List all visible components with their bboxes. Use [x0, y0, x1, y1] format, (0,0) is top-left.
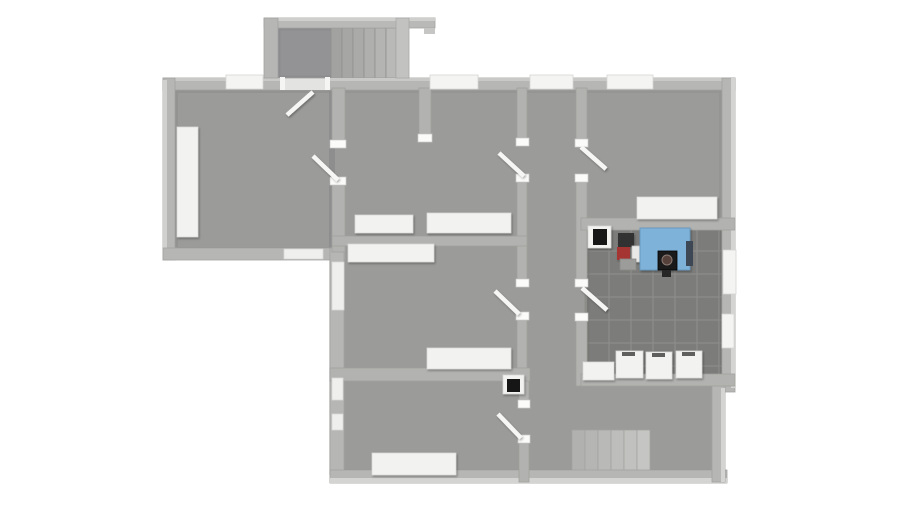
- sideboard: [372, 453, 456, 475]
- lower-divider-wall: [330, 368, 530, 381]
- sideboard: [637, 197, 717, 219]
- washing-machine-panel: [682, 352, 695, 356]
- sideboard: [427, 348, 511, 369]
- bottom-stair-tread: [637, 430, 650, 472]
- door-jamb-cap: [516, 138, 529, 146]
- corridor-east-wall-2: [576, 182, 587, 279]
- door-jamb-cap: [575, 313, 588, 321]
- west-wall-highlight: [163, 80, 167, 258]
- stairwell-right-wall: [396, 18, 409, 78]
- washing-machine-panel: [652, 353, 665, 357]
- window-north: [530, 75, 573, 89]
- east-wall-lower-highlight: [721, 388, 725, 482]
- door-jamb-cap: [575, 139, 588, 147]
- radiator: [332, 414, 343, 430]
- door-jamb-cap: [418, 134, 432, 142]
- kitchen-appliance-red: [617, 247, 630, 260]
- door-jamb-cap: [518, 400, 530, 408]
- door-jamb-cap: [330, 140, 346, 148]
- kitchen-appliance-gray: [620, 259, 636, 270]
- stairwell-left-wall: [264, 18, 278, 78]
- radiator: [284, 249, 323, 259]
- corridor-east-wall-1: [576, 88, 587, 139]
- leftroom-east-wall-upper: [332, 88, 345, 140]
- island-machine-knob: [662, 255, 672, 265]
- bottom-stair-tread: [624, 430, 637, 472]
- top-stair-tread: [364, 28, 375, 78]
- sideboard: [427, 213, 511, 233]
- island-chair-dark: [686, 241, 693, 266]
- bottom-stair-tread: [585, 430, 598, 472]
- door-jamb-cap: [516, 279, 529, 287]
- stairwell-top-wall-end: [424, 28, 435, 34]
- window-east: [722, 314, 734, 348]
- kitchen-appliance-dark: [618, 233, 634, 247]
- floor-left-room: [175, 90, 332, 250]
- top-stair-tread: [353, 28, 364, 78]
- wardrobe: [177, 127, 198, 237]
- radiator: [332, 378, 343, 400]
- entry-door-threshold: [284, 79, 326, 90]
- dryer: [583, 362, 614, 380]
- washing-machine-panel: [622, 352, 635, 356]
- top-stair-tread: [386, 28, 396, 78]
- entry-door-jamb: [280, 77, 285, 90]
- upper-middle-stub-wall: [419, 88, 431, 134]
- window-north: [226, 75, 263, 89]
- corridor-west-wall-1: [517, 88, 527, 138]
- bottom-stair-tread: [572, 430, 585, 472]
- sideboard: [348, 244, 434, 262]
- wall-cabinet-door: [593, 229, 607, 245]
- door-jamb-cap: [575, 174, 588, 182]
- door-jamb-cap: [575, 279, 588, 287]
- bottom-stair-tread: [611, 430, 624, 472]
- corridor-west-wall-2: [517, 182, 527, 279]
- sideboard: [355, 215, 413, 233]
- island-machine-tab: [662, 270, 671, 277]
- bottom-stair-tread: [598, 430, 611, 472]
- hall-west-wall-2: [519, 443, 529, 482]
- window-east: [723, 250, 736, 294]
- floorplan-canvas: [0, 0, 900, 506]
- window-north: [607, 75, 653, 89]
- top-stair-tread: [342, 28, 353, 78]
- floorplan-screenshot: [0, 0, 900, 506]
- top-stair-tread: [375, 28, 386, 78]
- top-stair-tread: [331, 28, 342, 78]
- utility-box: [507, 379, 520, 392]
- radiator: [332, 262, 344, 310]
- window-north: [430, 75, 478, 89]
- entry-door-jamb: [325, 77, 330, 90]
